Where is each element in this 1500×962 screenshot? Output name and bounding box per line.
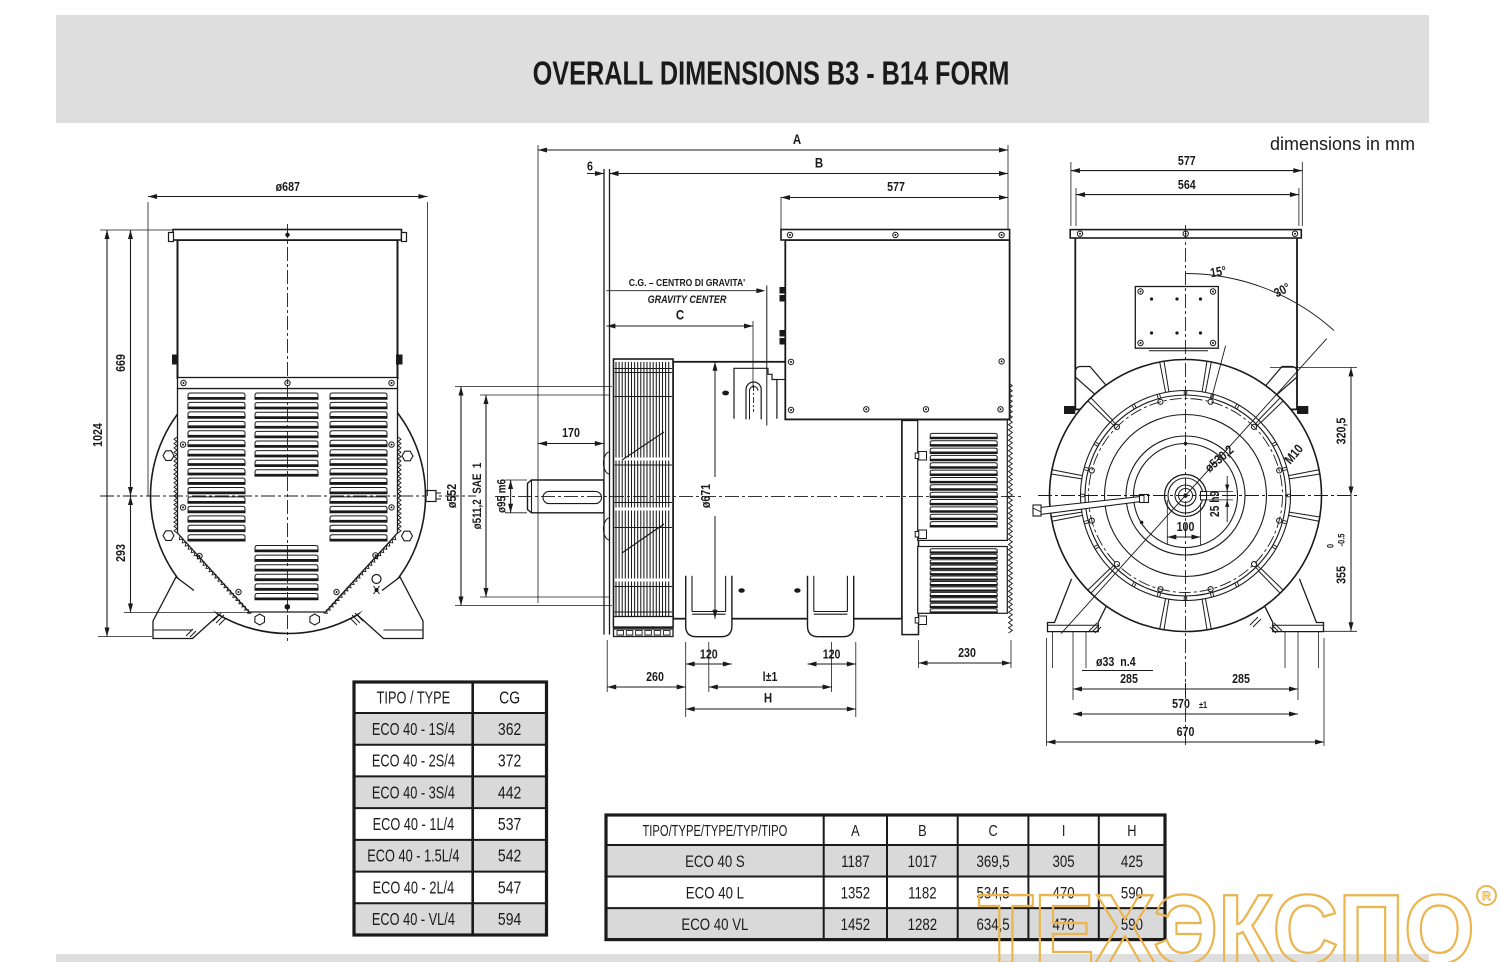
svg-text:100: 100: [1177, 519, 1195, 534]
svg-text:ECO 40 - VL/4: ECO 40 - VL/4: [372, 910, 455, 929]
svg-text:260: 260: [646, 669, 664, 684]
svg-text:ø95 m6: ø95 m6: [496, 479, 509, 513]
svg-text:B: B: [815, 154, 823, 170]
svg-text:0: 0: [1326, 544, 1336, 548]
svg-text:C: C: [988, 823, 997, 841]
svg-text:537: 537: [498, 816, 521, 835]
svg-text:-0.5: -0.5: [1337, 533, 1347, 546]
svg-text:I: I: [1062, 823, 1066, 841]
svg-text:A: A: [793, 131, 801, 147]
svg-text:1282: 1282: [908, 915, 937, 934]
svg-text:ø552: ø552: [444, 484, 459, 509]
svg-text:320,5: 320,5: [1333, 417, 1348, 444]
svg-text:±1: ±1: [1199, 700, 1208, 710]
svg-text:355: 355: [1333, 566, 1348, 584]
svg-text:230: 230: [958, 645, 976, 660]
svg-text:l±1: l±1: [763, 669, 778, 684]
svg-text:285: 285: [1120, 671, 1138, 686]
svg-text:305: 305: [1053, 852, 1075, 871]
svg-text:ECO 40 VL: ECO 40 VL: [681, 915, 748, 934]
svg-text:H: H: [764, 689, 772, 705]
svg-text:ТЕХЭКСПО: ТЕХЭКСПО: [978, 875, 1475, 962]
svg-text:670: 670: [1177, 724, 1195, 739]
svg-text:577: 577: [887, 179, 905, 194]
svg-text:1187: 1187: [841, 852, 869, 871]
svg-text:6: 6: [587, 158, 593, 173]
svg-text:ECO 40 - 2L/4: ECO 40 - 2L/4: [373, 879, 455, 898]
svg-text:577: 577: [1178, 153, 1196, 168]
svg-text:1024: 1024: [90, 423, 105, 447]
svg-text:372: 372: [498, 752, 521, 771]
svg-text:425: 425: [1121, 852, 1143, 871]
svg-text:ECO 40 - 2S/4: ECO 40 - 2S/4: [372, 752, 455, 771]
svg-text:GRAVITY CENTER: GRAVITY CENTER: [648, 294, 727, 306]
svg-text:1182: 1182: [908, 884, 936, 903]
svg-text:542: 542: [498, 847, 521, 866]
svg-text:ECO 40 - 1L/4: ECO 40 - 1L/4: [373, 815, 455, 834]
svg-text:594: 594: [498, 911, 522, 930]
svg-text:OVERALL DIMENSIONS B3 - B14 FO: OVERALL DIMENSIONS B3 - B14 FORM: [533, 55, 1010, 92]
svg-text:C: C: [676, 306, 684, 322]
svg-text:dimensions in mm: dimensions in mm: [1270, 134, 1415, 154]
svg-text:CG: CG: [499, 689, 520, 708]
svg-text:H: H: [1127, 823, 1136, 841]
svg-text:1352: 1352: [841, 884, 870, 903]
svg-text:285: 285: [1232, 671, 1250, 686]
svg-text:ECO 40 - 1.5L/4: ECO 40 - 1.5L/4: [367, 847, 460, 866]
svg-text:170: 170: [562, 425, 580, 440]
svg-text:547: 547: [498, 879, 521, 898]
svg-text:ECO 40 - 3S/4: ECO 40 - 3S/4: [372, 783, 455, 802]
svg-text:ø33 n.4: ø33 n.4: [1096, 654, 1136, 669]
svg-text:362: 362: [498, 721, 521, 740]
svg-text:1452: 1452: [841, 915, 870, 934]
svg-text:TIPO / TYPE: TIPO / TYPE: [377, 689, 451, 708]
svg-text:ø687: ø687: [276, 179, 301, 194]
svg-text:1017: 1017: [908, 852, 937, 871]
svg-text:A: A: [851, 823, 860, 841]
svg-text:442: 442: [498, 784, 521, 803]
svg-text:120: 120: [700, 646, 718, 661]
svg-text:ECO 40 L: ECO 40 L: [686, 884, 744, 903]
svg-text:369,5: 369,5: [977, 852, 1010, 871]
svg-text:ø511,2 SAE 1: ø511,2 SAE 1: [471, 463, 484, 530]
svg-text:120: 120: [823, 646, 841, 661]
svg-text:293: 293: [113, 544, 128, 562]
svg-text:564: 564: [1178, 177, 1196, 192]
svg-text:25 h9: 25 h9: [1209, 491, 1222, 517]
svg-text:ECO 40 - 1S/4: ECO 40 - 1S/4: [372, 720, 455, 739]
svg-text:C.G. – CENTRO DI GRAVITA': C.G. – CENTRO DI GRAVITA': [629, 277, 745, 289]
svg-text:669: 669: [113, 354, 128, 372]
svg-text:15°: 15°: [1209, 263, 1228, 281]
svg-text:R: R: [1482, 889, 1491, 903]
svg-text:ECO 40 S: ECO 40 S: [685, 852, 745, 871]
svg-text:570: 570: [1172, 696, 1190, 711]
svg-text:TIPO/TYPE/TYPE/TYP/TIPO: TIPO/TYPE/TYPE/TYP/TIPO: [642, 821, 787, 840]
svg-text:B: B: [918, 823, 927, 841]
svg-text:ø671: ø671: [698, 484, 713, 509]
